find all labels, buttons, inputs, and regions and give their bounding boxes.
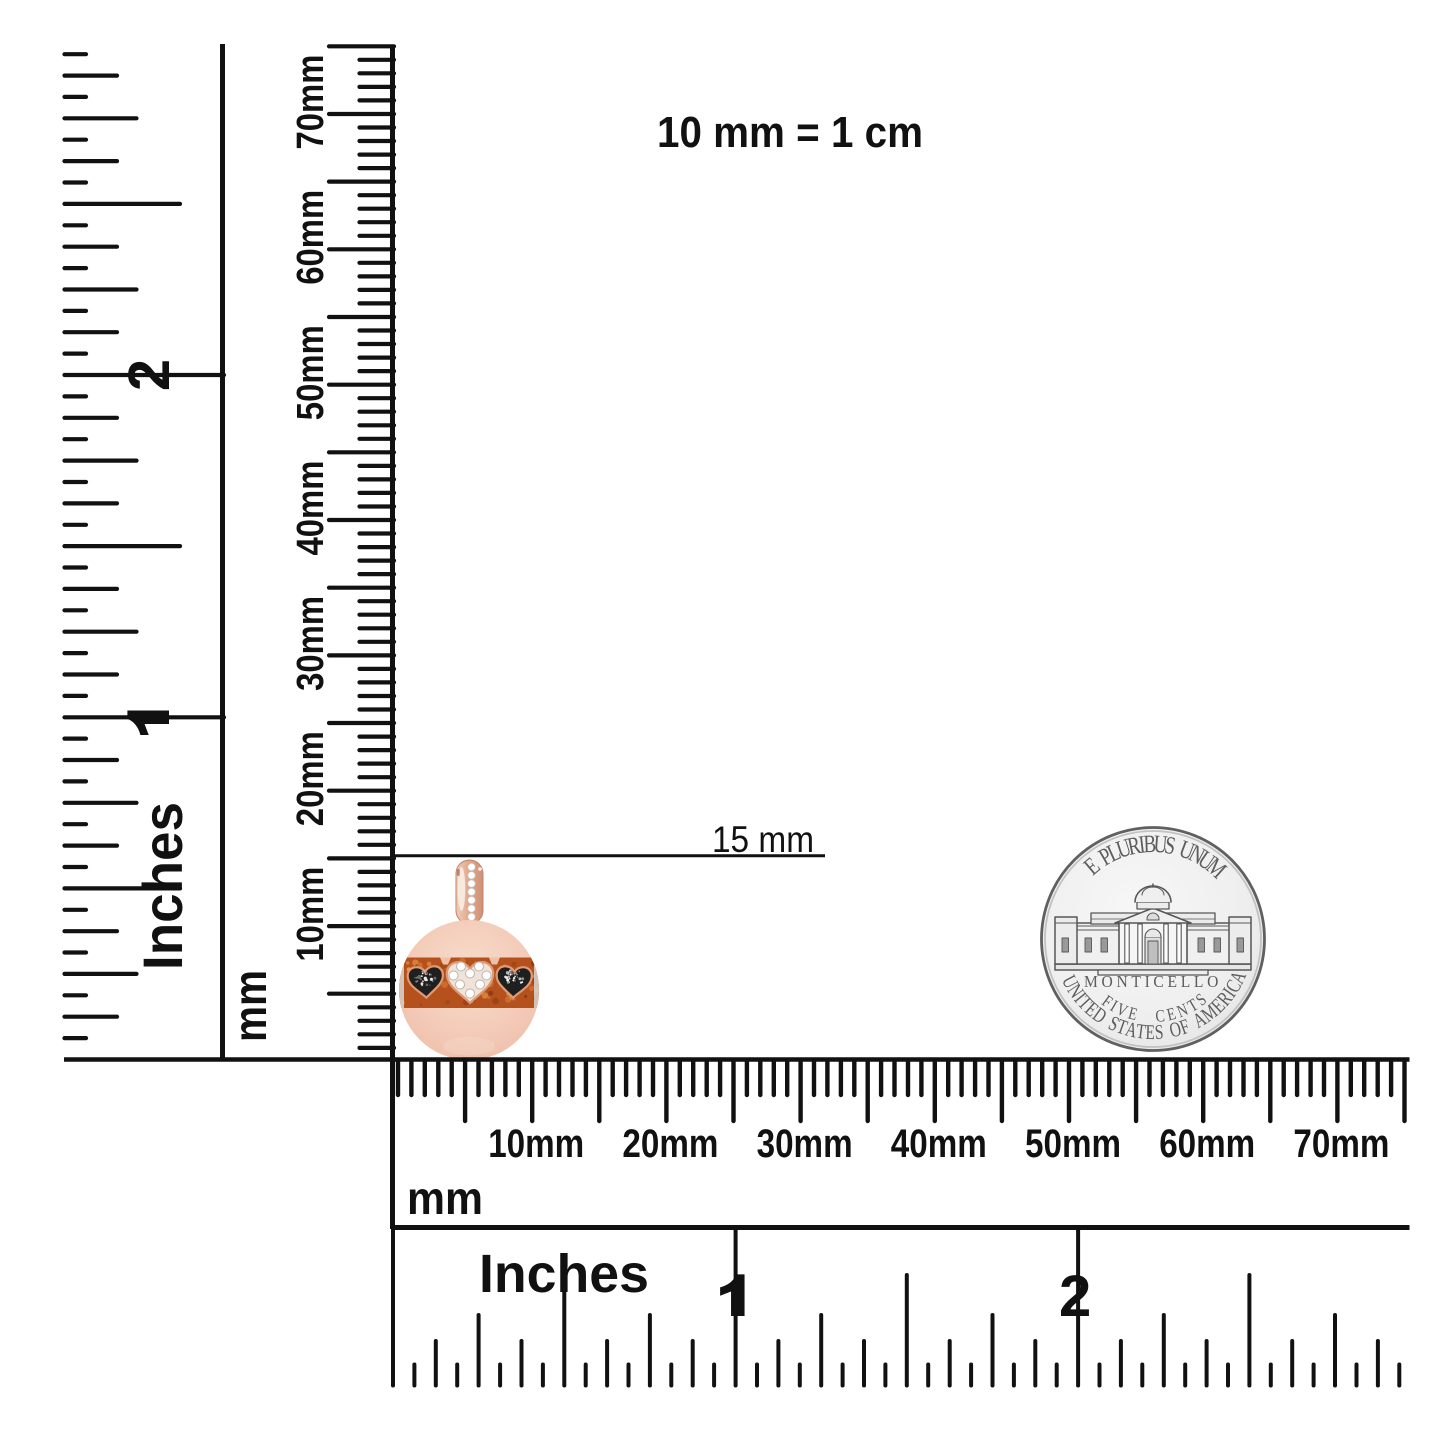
svg-text:mm: mm (407, 1172, 483, 1224)
svg-text:70mm: 70mm (290, 55, 332, 150)
svg-text:Inches: Inches (131, 802, 194, 970)
svg-text:15 mm: 15 mm (712, 819, 814, 860)
svg-text:10 mm = 1 cm: 10 mm = 1 cm (657, 108, 923, 157)
svg-text:40mm: 40mm (891, 1122, 987, 1166)
svg-text:10mm: 10mm (290, 867, 332, 962)
svg-text:60mm: 60mm (1159, 1122, 1255, 1166)
svg-text:mm: mm (224, 970, 276, 1042)
svg-text:30mm: 30mm (757, 1122, 853, 1166)
svg-text:2: 2 (1059, 1264, 1091, 1329)
svg-text:20mm: 20mm (290, 731, 332, 826)
svg-text:C: C (1155, 1007, 1166, 1027)
svg-text:70mm: 70mm (1293, 1122, 1389, 1166)
svg-text:40mm: 40mm (290, 461, 332, 556)
svg-text:Inches: Inches (479, 1244, 649, 1304)
svg-text:10mm: 10mm (488, 1122, 584, 1166)
svg-text:50mm: 50mm (290, 325, 332, 420)
svg-text:50mm: 50mm (1025, 1122, 1121, 1166)
svg-text:2: 2 (117, 359, 182, 391)
svg-text:20mm: 20mm (622, 1122, 718, 1166)
svg-text:60mm: 60mm (290, 190, 332, 285)
svg-text:30mm: 30mm (290, 596, 332, 691)
